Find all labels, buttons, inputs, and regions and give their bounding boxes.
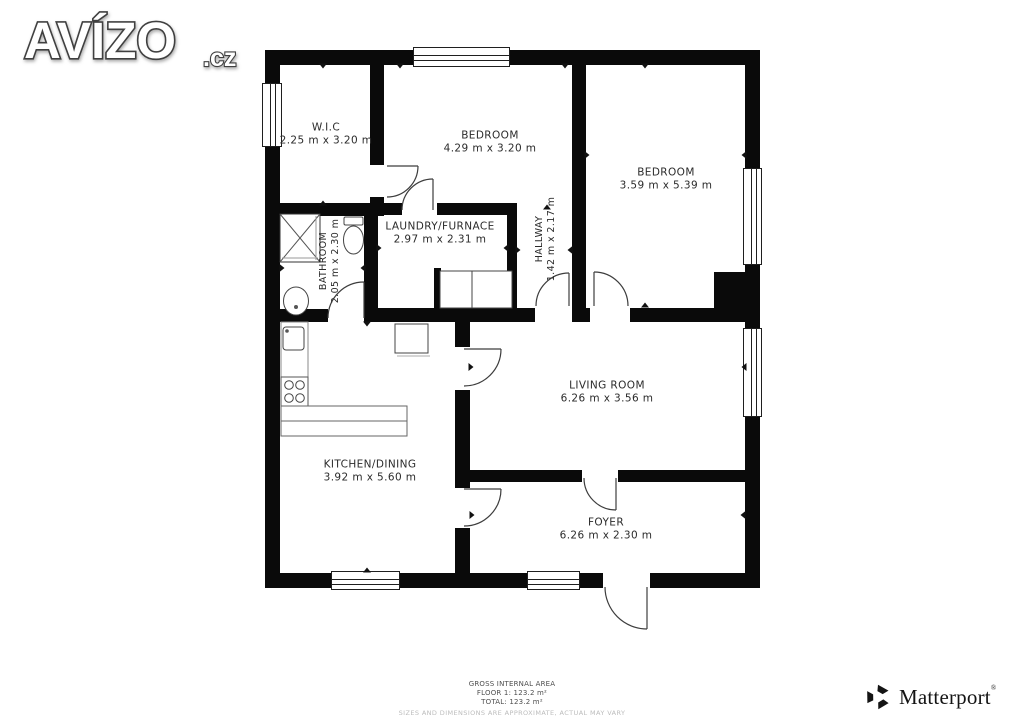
room-name: BEDROOM	[444, 130, 537, 143]
kitchen-island	[281, 421, 407, 436]
room-dims: 3.92 m x 5.60 m	[324, 471, 417, 484]
floor-area-value: FLOOR 1: 123.2 m²	[399, 689, 626, 698]
room-name: KITCHEN/DINING	[324, 459, 417, 472]
room-label-laundry: LAUNDRY/FURNACE 2.97 m x 2.31 m	[385, 221, 494, 246]
dimension-tick	[741, 511, 746, 519]
matterport-wordmark: Matterport®	[899, 685, 996, 710]
matterport-trademark: ®	[991, 684, 997, 692]
dimension-tick	[363, 568, 371, 573]
dimension-tick	[585, 151, 590, 159]
window-glass	[751, 168, 757, 265]
furnace-unit	[440, 271, 472, 308]
toilet-tank	[344, 217, 363, 225]
window	[413, 47, 510, 67]
dimension-tick	[377, 244, 382, 252]
window-glass	[751, 328, 757, 417]
furnace-unit	[472, 271, 512, 308]
wall	[507, 203, 517, 322]
room-name: W.I.C	[280, 122, 373, 135]
avizo-logo-suffix: .cz	[203, 44, 236, 72]
wall	[455, 308, 470, 347]
dimension-tick	[516, 246, 521, 254]
wall	[364, 308, 535, 322]
room-name: BATHROOM	[318, 219, 330, 304]
room-name: HALLWAY	[534, 197, 546, 282]
doors-and-fixtures-layer	[0, 0, 1024, 724]
room-dims: 2.25 m x 3.20 m	[280, 134, 373, 147]
toilet-bowl	[344, 226, 364, 254]
dimension-tick	[742, 151, 747, 159]
pinwheel-shapes	[864, 685, 889, 711]
room-name: LAUNDRY/FURNACE	[385, 221, 494, 234]
avizo-logo: AVÍZO .cz	[22, 9, 262, 73]
dimension-tick	[561, 64, 569, 69]
window	[527, 571, 580, 590]
room-dims: 1.42 m x 2.17 m	[546, 197, 558, 282]
wall	[572, 308, 590, 322]
shower-glass	[282, 216, 318, 260]
door-arc	[584, 478, 616, 510]
burner	[296, 394, 305, 403]
wall	[378, 203, 402, 215]
stove	[281, 377, 308, 406]
wall	[437, 203, 517, 215]
dimension-tick	[568, 246, 573, 254]
dimension-tick	[641, 64, 649, 69]
wall	[370, 65, 384, 165]
window	[331, 571, 400, 590]
matterport-name: Matterport	[899, 685, 991, 709]
wall	[364, 203, 378, 322]
window-glass	[413, 55, 510, 61]
window	[743, 328, 762, 417]
room-dims: 3.59 m x 5.39 m	[620, 179, 713, 192]
room-dims: 4.29 m x 3.20 m	[444, 142, 537, 155]
avizo-logo-text: AVÍZO	[24, 12, 176, 69]
dimension-tick	[361, 264, 366, 272]
total-area-value: TOTAL: 123.2 m²	[399, 698, 626, 707]
dimension-tick	[396, 64, 404, 69]
gross-internal-area-label: GROSS INTERNAL AREA	[399, 680, 626, 689]
room-dims: 2.97 m x 2.31 m	[385, 233, 494, 246]
room-label-hallway: HALLWAY 1.42 m x 2.17 m	[534, 197, 558, 282]
wall	[714, 272, 760, 322]
room-dims: 6.26 m x 2.30 m	[560, 529, 653, 542]
shower	[280, 214, 320, 262]
room-label-bedroom-1: BEDROOM 4.29 m x 3.20 m	[444, 130, 537, 155]
window-glass	[527, 579, 580, 585]
wall	[455, 470, 582, 482]
wall	[280, 309, 328, 322]
room-dims: 6.26 m x 3.56 m	[561, 392, 654, 405]
door-arc	[387, 166, 418, 197]
door-arc	[594, 272, 628, 306]
room-label-bathroom: BATHROOM 2.05 m x 2.30 m	[318, 219, 342, 304]
window-glass	[331, 579, 400, 585]
room-label-living-room: LIVING ROOM 6.26 m x 3.56 m	[561, 380, 654, 405]
dimension-tick	[504, 244, 509, 252]
room-label-foyer: FOYER 6.26 m x 2.30 m	[560, 517, 653, 542]
kitchen-sink	[283, 327, 304, 350]
room-name: LIVING ROOM	[561, 380, 654, 393]
door-arc	[402, 179, 433, 210]
floorplan-page: AVÍZO .cz	[0, 0, 1024, 724]
wall	[434, 268, 441, 313]
kitchen-counter	[281, 322, 308, 377]
dimension-tick	[469, 363, 474, 371]
wall	[572, 65, 586, 308]
dimension-tick	[641, 303, 649, 308]
floorplan-footer: GROSS INTERNAL AREA FLOOR 1: 123.2 m² TO…	[399, 680, 626, 718]
fixtures-group	[280, 214, 512, 436]
room-label-kitchen-dining: KITCHEN/DINING 3.92 m x 5.60 m	[324, 459, 417, 484]
shower-x	[280, 214, 320, 262]
door-arc	[464, 489, 501, 526]
matterport-pinwheel-icon	[864, 683, 892, 711]
wall	[455, 528, 470, 588]
kitchen-appliance	[395, 324, 428, 353]
wall	[265, 50, 760, 65]
wall	[618, 470, 760, 482]
entrance-door-arc	[605, 587, 647, 629]
dimension-tick	[742, 363, 747, 371]
dimension-tick	[280, 264, 285, 272]
room-label-bedroom-2: BEDROOM 3.59 m x 5.39 m	[620, 167, 713, 192]
room-dims: 2.05 m x 2.30 m	[330, 219, 342, 304]
wall	[650, 573, 760, 588]
room-label-wic: W.I.C 2.25 m x 3.20 m	[280, 122, 373, 147]
room-name: BEDROOM	[620, 167, 713, 180]
disclaimer-text: SIZES AND DIMENSIONS ARE APPROXIMATE, AC…	[399, 709, 626, 718]
window-glass	[270, 83, 276, 147]
room-name: FOYER	[560, 517, 653, 530]
burner	[285, 394, 294, 403]
dimension-tick	[319, 201, 327, 206]
kitchen-island	[281, 406, 407, 421]
burner	[285, 381, 294, 390]
matterport-logo: Matterport®	[864, 683, 996, 711]
burner	[296, 381, 305, 390]
dimension-tick	[319, 64, 327, 69]
kitchen-faucet	[285, 329, 289, 333]
window	[743, 168, 762, 265]
dimension-tick	[470, 511, 475, 519]
dimension-tick	[363, 322, 371, 327]
